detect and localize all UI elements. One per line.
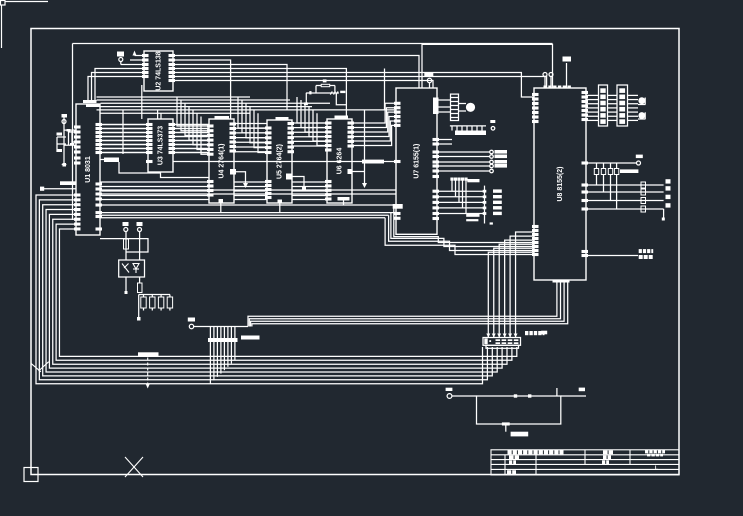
svg-text:U7 6155(1): U7 6155(1) — [414, 144, 421, 179]
svg-text:U8 8155(2): U8 8155(2) — [557, 166, 564, 201]
svg-text:U1 8031: U1 8031 — [85, 156, 92, 183]
svg-text:U3 74LS373: U3 74LS373 — [158, 126, 165, 165]
svg-text:U2 74LS138: U2 74LS138 — [156, 51, 163, 90]
